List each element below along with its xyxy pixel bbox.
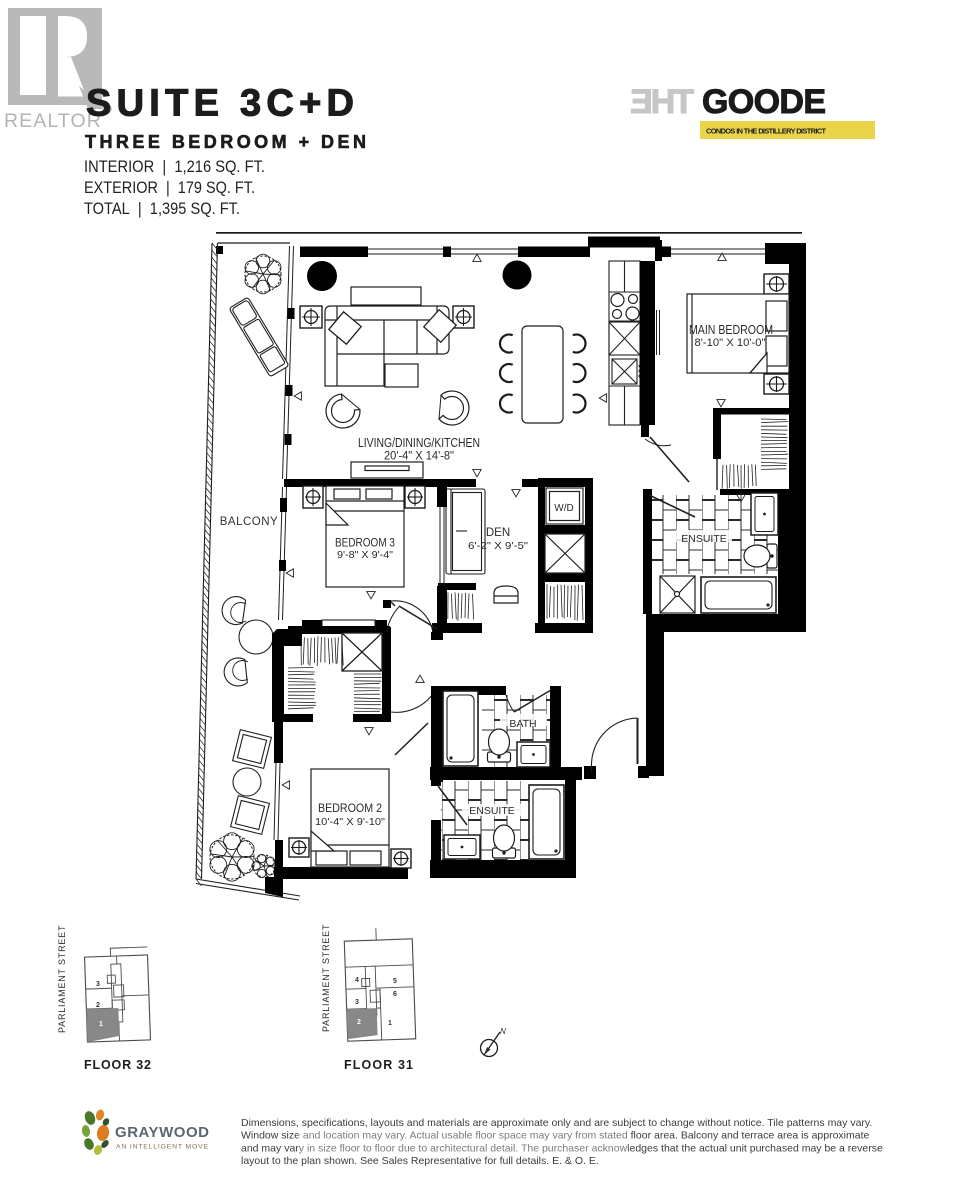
svg-text:3: 3 (355, 999, 359, 1006)
svg-text:TOTAL | 1,395 SQ. FT.: TOTAL | 1,395 SQ. FT. (84, 199, 240, 218)
svg-text:AN INTELLIGENT MOVE: AN INTELLIGENT MOVE (116, 1144, 208, 1151)
svg-text:1: 1 (388, 1020, 392, 1027)
svg-text:MAIN BEDROOM: MAIN BEDROOM (689, 323, 773, 337)
svg-text:CONDOS IN THE DISTILLERY DISTR: CONDOS IN THE DISTILLERY DISTRICT (706, 127, 826, 136)
svg-text:Dimensions, specifications, la: Dimensions, specifications, layouts and … (241, 1117, 872, 1129)
svg-text:5: 5 (393, 978, 397, 985)
svg-text:PARLIAMENT STREET: PARLIAMENT STREET (321, 924, 331, 1032)
svg-text:FLOOR 32: FLOOR 32 (84, 1058, 151, 1072)
svg-text:BATH: BATH (509, 718, 536, 730)
svg-text:W/D: W/D (554, 503, 573, 514)
svg-text:10'-4" X 9'-10": 10'-4" X 9'-10" (315, 816, 385, 828)
svg-text:BEDROOM 3: BEDROOM 3 (335, 538, 395, 550)
svg-text:8'-10" X 10'-0": 8'-10" X 10'-0" (695, 337, 766, 349)
svg-text:LIVING/DINING/KITCHEN: LIVING/DINING/KITCHEN (358, 436, 480, 450)
svg-text:1: 1 (99, 1021, 103, 1028)
svg-text:9'-8" X 9'-4": 9'-8" X 9'-4" (337, 549, 393, 561)
svg-text:INTERIOR | 1,216 SQ. FT.: INTERIOR | 1,216 SQ. FT. (84, 157, 265, 176)
svg-text:ENSUITE: ENSUITE (681, 533, 727, 545)
svg-text:4: 4 (355, 977, 359, 984)
svg-text:EXTERIOR | 179 SQ. FT.: EXTERIOR | 179 SQ. FT. (84, 178, 255, 197)
svg-text:layout to the plan shown. See: layout to the plan shown. See Sales Repr… (241, 1155, 599, 1167)
svg-text:ENSUITE: ENSUITE (469, 805, 515, 817)
svg-text:6: 6 (393, 991, 397, 998)
svg-text:2: 2 (357, 1019, 361, 1026)
svg-text:SUITE 3C+D: SUITE 3C+D (86, 83, 354, 125)
svg-text:20'-4" X 14'-8": 20'-4" X 14'-8" (384, 451, 454, 463)
svg-text:BEDROOM 2: BEDROOM 2 (318, 803, 382, 815)
svg-text:3: 3 (96, 981, 100, 988)
svg-text:6'-2" X 9'-5": 6'-2" X 9'-5" (468, 540, 528, 552)
svg-text:N: N (500, 1027, 506, 1036)
svg-text:GOODE: GOODE (702, 83, 826, 121)
svg-text:THREE BEDROOM + DEN: THREE BEDROOM + DEN (85, 132, 366, 152)
svg-text:FLOOR 31: FLOOR 31 (344, 1058, 413, 1072)
svg-text:2: 2 (96, 1002, 100, 1009)
svg-text:GRAYWOOD: GRAYWOOD (115, 1124, 209, 1141)
svg-text:DEN: DEN (486, 527, 510, 539)
svg-text:PARLIAMENT STREET: PARLIAMENT STREET (57, 925, 67, 1033)
svg-text:BALCONY: BALCONY (220, 516, 278, 528)
svg-text:THE: THE (630, 83, 694, 121)
